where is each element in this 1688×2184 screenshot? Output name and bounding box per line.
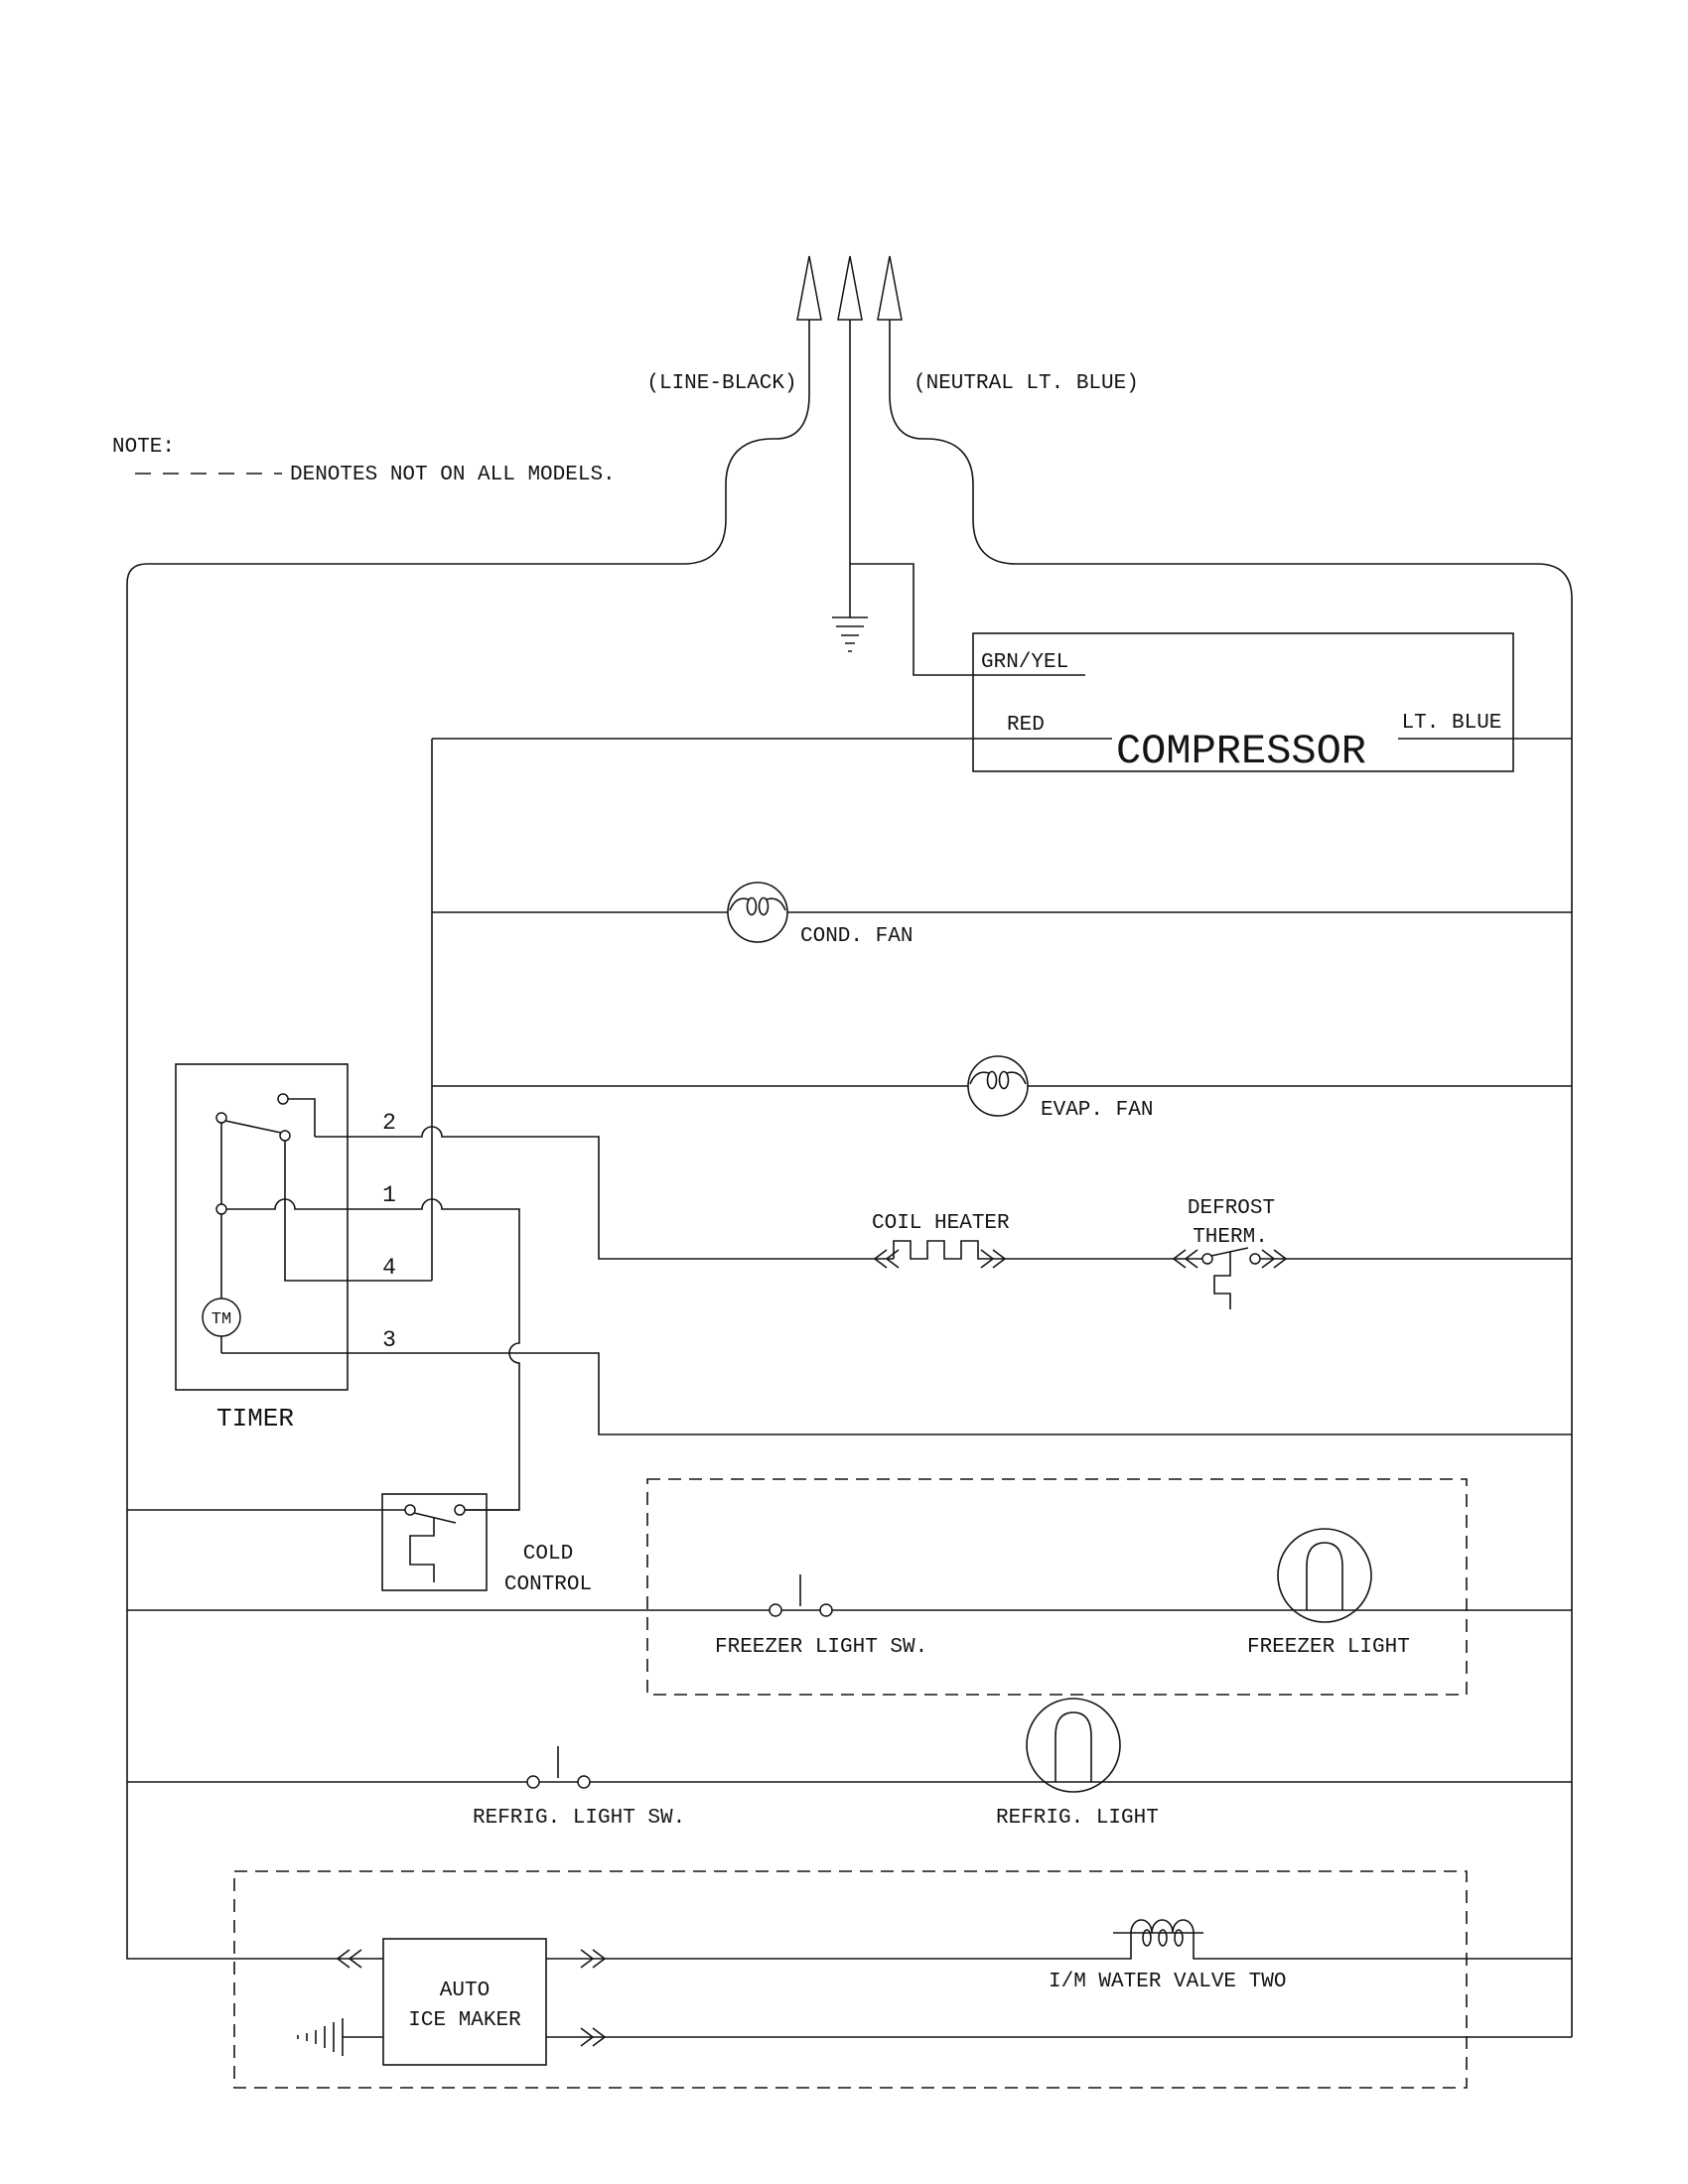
wiring-diagram-canvas: NOTE: DENOTES NOT ON ALL MODELS. (LINE-B… [0,0,1688,2184]
defrost-therm-label-1: DEFROST [1188,1197,1275,1220]
terminal-1-label: 1 [382,1182,396,1208]
defrost-heater-circuit: COIL HEATER DEFROST THERM. [315,1127,1572,1309]
timer-switch-arm [225,1121,281,1133]
refrigerator-wiring-schematic: NOTE: DENOTES NOT ON ALL MODELS. (LINE-B… [0,0,1688,2184]
defrost-therm-label-2: THERM. [1193,1226,1268,1249]
cond-fan-label: COND. FAN [800,925,913,948]
refrig-light-filament [1055,1712,1091,1782]
note-block: NOTE: DENOTES NOT ON ALL MODELS. [112,436,616,486]
evap-fan-motor-icon [968,1056,1028,1116]
ground-arrowhead-icon [838,256,862,320]
freezer-light-circuit: FREEZER LIGHT SW. FREEZER LIGHT [127,1479,1572,1695]
timer: TM TIMER 2 1 4 3 [176,1064,396,1433]
wire-2 [315,1127,894,1259]
neutral-label: (NEUTRAL LT. BLUE) [914,372,1139,395]
earth-ground-icon [832,617,868,651]
neutral-arrowhead-icon [878,256,902,320]
cold-control-label-2: CONTROL [504,1573,592,1596]
ice-maker-top-wire [546,1933,1572,1959]
timer-contact-2 [278,1094,288,1104]
refrig-light-sw-label: REFRIG. LIGHT SW. [473,1807,685,1830]
wire-3 [221,1353,1572,1434]
terminal-3-label: 3 [382,1327,396,1353]
compressor: GRN/YEL RED LT. BLUE COMPRESSOR [432,633,1572,775]
line-arrowhead-icon [797,256,821,320]
timer-motor-label: TM [211,1310,231,1329]
freezer-light-sw-label: FREEZER LIGHT SW. [715,1636,927,1659]
ice-maker-circuit: AUTO ICE MAKER I/M WATER VALVE TWO [234,1871,1572,2088]
timer-pivot [216,1113,226,1123]
note-legend: DENOTES NOT ON ALL MODELS. [290,464,616,486]
cond-fan: COND. FAN [432,883,1572,948]
note-title: NOTE: [112,436,175,459]
water-valve-label: I/M WATER VALVE TWO [1049,1971,1286,1993]
timer-label: TIMER [216,1404,294,1433]
timer-contact-4 [280,1131,290,1141]
timer-terminal-1 [216,1204,226,1214]
terminal-4-label: 4 [382,1255,396,1281]
terminal-2-label: 2 [382,1110,396,1136]
supply-lines [127,256,1572,2037]
ice-maker-label-1: AUTO [440,1979,490,2002]
coil-heater-element [894,1241,1202,1259]
coil-heater-label: COIL HEATER [872,1212,1010,1235]
red-label: RED [1007,714,1045,737]
compressor-label: COMPRESSOR [1116,728,1366,775]
cold-control-sensor [410,1517,434,1582]
ice-maker-label-2: ICE MAKER [408,2009,521,2032]
evap-fan-label: EVAP. FAN [1041,1099,1153,1122]
ice-maker-ground-icon [298,2018,343,2056]
timer-box [176,1064,348,1390]
neutral-lt-blue-wire [890,258,1572,2037]
evap-fan: EVAP. FAN [432,1056,1572,1122]
line-black-wire [127,258,809,1959]
wire-4 [285,1141,432,1281]
cold-control-label-1: COLD [523,1543,573,1566]
water-valve-coil-icon [1131,1920,1194,1933]
freezer-light-filament [1307,1543,1342,1610]
refrig-light-label: REFRIG. LIGHT [996,1807,1159,1830]
wire-1 [226,1199,519,1510]
freezer-optional-dashed-box [647,1479,1467,1695]
cond-fan-motor-icon [728,883,787,942]
lt-blue-label: LT. BLUE [1402,712,1502,735]
freezer-light-label: FREEZER LIGHT [1247,1636,1410,1659]
refrig-light-circuit: REFRIG. LIGHT SW. REFRIG. LIGHT [127,1699,1572,1830]
defrost-therm-sensor [1214,1252,1230,1309]
line-label: (LINE-BLACK) [646,372,796,395]
cold-control-arm [414,1513,456,1523]
cold-control: COLD CONTROL [127,1494,592,1596]
grn-yel-label: GRN/YEL [981,651,1068,674]
